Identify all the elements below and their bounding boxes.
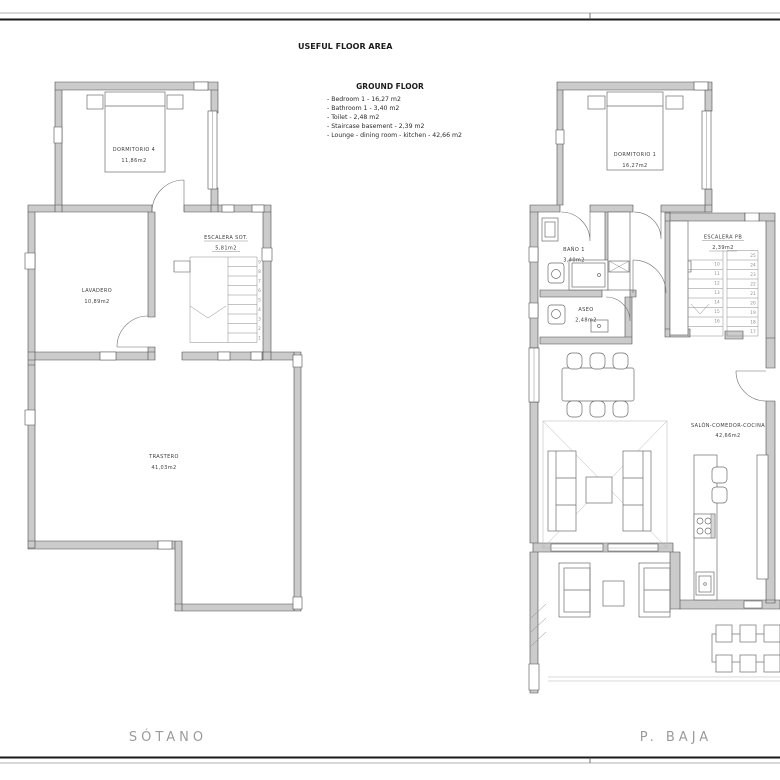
kitchen (694, 455, 768, 600)
stair-number: 21 (750, 291, 756, 297)
toilet (548, 305, 565, 324)
stair-number: 25 (750, 253, 756, 259)
window-dormitorio1 (702, 111, 711, 189)
stair-number: 13 (714, 290, 720, 296)
staircase-pbaja: ESCALERA PB 2,39m2 10 11 12 13 14 15 16 … (670, 221, 758, 336)
room-area: 42,66m2 (715, 433, 740, 439)
sofa (548, 451, 576, 531)
room-aseo: ASEO 2,48m2 (548, 297, 630, 332)
legend-item: - Bathroom 1 - 3,40 m2 (327, 105, 399, 112)
outdoor-stool (716, 625, 732, 642)
room-label: ESCALERA PB (704, 235, 742, 241)
stair-number: 15 (714, 309, 720, 315)
window-salon-left (529, 348, 539, 402)
room-label: BAÑO 1 (563, 246, 585, 253)
stair-wall-column (670, 221, 688, 335)
dining-table (562, 368, 634, 401)
stair-number: 2 (258, 326, 261, 332)
floor-label-sotano: SÓTANO (129, 729, 207, 745)
kitchen-counter (757, 455, 768, 579)
legend-item: - Bedroom 1 - 16,27 m2 (327, 96, 401, 103)
stair-numbers-up: 10 11 12 13 14 15 16 (714, 262, 720, 325)
stair-treads (190, 257, 257, 343)
room-area: 11,86m2 (121, 158, 146, 164)
dining-chair (567, 401, 582, 417)
room-dormitorio4: DORMITORIO 4 11,86m2 (87, 92, 184, 212)
nightstand (666, 96, 683, 109)
stair-number: 16 (714, 319, 720, 325)
stair-number: 19 (750, 310, 756, 316)
legend-item: - Staircase basement - 2,39 m2 (327, 123, 425, 130)
stair-number: 17 (750, 329, 756, 335)
stair-number: 8 (258, 269, 261, 275)
stair-number: 6 (258, 288, 261, 294)
room-area: 41,03m2 (151, 465, 176, 471)
door-arc (117, 316, 148, 347)
nightstand (588, 96, 605, 109)
outdoor-stool (764, 625, 780, 642)
entry-door-arc (736, 371, 766, 401)
shower (569, 260, 608, 290)
room-salon: SALÓN-COMEDOR-COCINA 42,66m2 (543, 353, 766, 548)
window-dormitorio4 (208, 111, 217, 189)
stair-number: 3 (258, 317, 261, 323)
stair-number: 12 (714, 281, 720, 287)
room-label: ESCALERA SOT. (204, 235, 248, 241)
sofa (623, 451, 651, 531)
room-area: 16,27m2 (622, 163, 647, 169)
room-area: 5,81m2 (215, 246, 237, 252)
bar-stool (712, 487, 727, 503)
plan-pbaja: DORMITORIO 1 16,27m2 BAÑO 1 3,40m2 (529, 82, 780, 745)
staircase-sotano: ESCALERA SOT. 5,81m2 9 8 7 6 5 4 3 2 1 (190, 235, 261, 343)
stair-number: 10 (714, 262, 720, 268)
nightstand (87, 95, 103, 109)
terrace (559, 563, 780, 672)
stair-number: 20 (750, 301, 756, 307)
sheet-border-top (0, 13, 780, 20)
bar-stool (712, 467, 727, 483)
room-area: 3,40m2 (563, 258, 585, 264)
legend-heading: GROUND FLOOR (356, 82, 424, 91)
stair-number: 9 (258, 260, 261, 266)
plan-sotano: DORMITORIO 4 11,86m2 LAVADERO 10,89m2 ES… (25, 82, 302, 745)
legend-item: - Toilet - 2,48 m2 (327, 114, 379, 121)
room-area: 2,48m2 (575, 318, 597, 324)
stair-number: 1 (258, 336, 261, 342)
drawing-sheet: USEFUL FLOOR AREA GROUND FLOOR - Bedroom… (0, 0, 780, 780)
stair-number: 24 (750, 263, 756, 269)
stair-number: 5 (258, 298, 261, 304)
room-label: SALÓN-COMEDOR-COCINA (691, 422, 765, 429)
room-bano: BAÑO 1 3,40m2 (542, 212, 608, 290)
dining-chair (567, 353, 582, 369)
room-area: 2,39m2 (712, 245, 734, 251)
terrace-table (603, 581, 624, 606)
legend-item: - Lounge - dining room - kitchen - 42,66… (327, 132, 462, 139)
stair-number: 11 (714, 271, 720, 277)
stair-treads (688, 251, 758, 337)
room-area: 10,89m2 (84, 299, 109, 305)
stair-number: 7 (258, 279, 261, 285)
stair-direction-arrow (691, 304, 709, 314)
dining-chair (590, 401, 605, 417)
stair-numbers: 9 8 7 6 5 4 3 2 1 (258, 260, 261, 342)
stair-direction-arrow (190, 306, 226, 318)
floorplan-canvas: USEFUL FLOOR AREA GROUND FLOOR - Bedroom… (0, 0, 780, 780)
outdoor-stool (740, 655, 756, 672)
room-lavadero: LAVADERO 10,89m2 (82, 288, 148, 347)
wardrobe (608, 212, 630, 290)
floor-label-pbaja: P. BAJA (640, 730, 712, 745)
room-label: TRASTERO (148, 454, 179, 460)
door-arc (152, 180, 184, 212)
dining-chair (590, 353, 605, 369)
dining-chair (613, 401, 628, 417)
stair-number: 22 (750, 282, 756, 288)
nightstand (167, 95, 183, 109)
room-label: LAVADERO (82, 288, 112, 294)
sink (542, 218, 558, 241)
door-arc (561, 212, 590, 241)
stove-side (711, 514, 715, 538)
room-label: DORMITORIO 1 (614, 152, 657, 158)
sheet-border-bottom (0, 758, 780, 764)
outdoor-stool (740, 625, 756, 642)
door-arc (633, 260, 666, 293)
room-label: DORMITORIO 4 (113, 147, 156, 153)
bed (607, 92, 663, 170)
door-arc (634, 212, 661, 239)
dining-chair (613, 353, 628, 369)
coffee-table (586, 477, 612, 503)
outdoor-stool (764, 655, 780, 672)
outdoor-stool (716, 655, 732, 672)
header: USEFUL FLOOR AREA GROUND FLOOR - Bedroom… (298, 42, 462, 139)
hall-wardrobe (608, 212, 666, 293)
stair-number: 18 (750, 320, 756, 326)
terrace-edge (548, 677, 780, 681)
room-trastero: TRASTERO 41,03m2 (148, 454, 179, 471)
stair-number: 23 (750, 272, 756, 278)
sheet-title: USEFUL FLOOR AREA (298, 42, 393, 51)
stair-numbers-down: 25 24 23 22 21 20 19 18 17 (750, 253, 756, 335)
stair-number: 14 (714, 300, 720, 306)
stair-number: 4 (258, 307, 261, 313)
room-label: ASEO (578, 307, 593, 313)
toilet (548, 263, 564, 283)
